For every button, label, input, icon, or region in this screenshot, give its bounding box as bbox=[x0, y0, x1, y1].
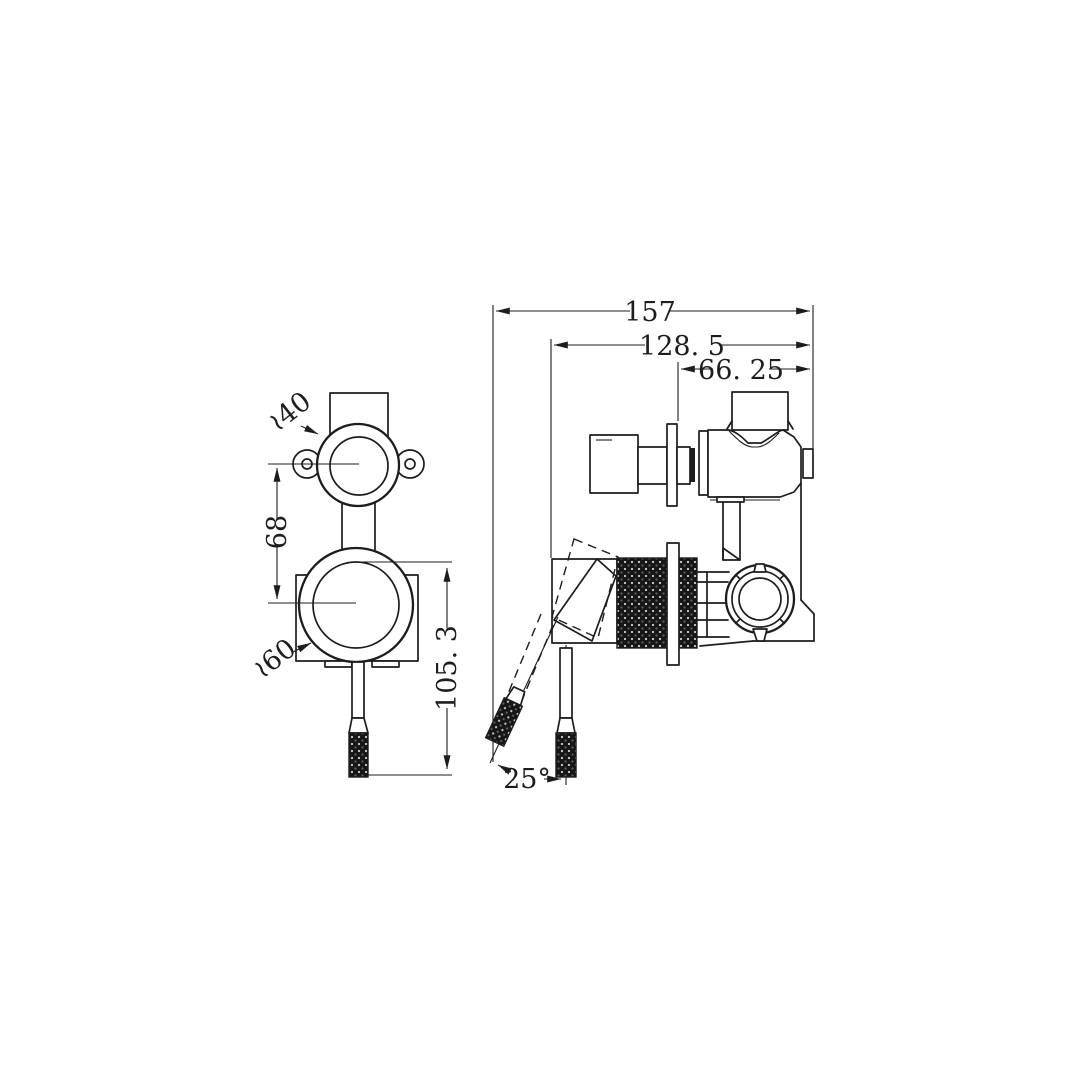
cartridge-stem bbox=[638, 447, 667, 484]
dim-overall-depth: 157 bbox=[624, 297, 676, 328]
front-handle-stem bbox=[352, 662, 364, 718]
front-view bbox=[268, 393, 424, 777]
front-handle-taper bbox=[349, 718, 368, 733]
spindle-lines bbox=[697, 572, 729, 637]
stem-spacer bbox=[677, 447, 690, 484]
lower-tab-right bbox=[372, 661, 399, 667]
lower-escutcheon-inner bbox=[313, 562, 399, 648]
valve-body bbox=[708, 430, 801, 497]
dim-handle-drop-height: 105. 3 bbox=[432, 625, 463, 711]
body-washer-plate bbox=[699, 431, 708, 495]
technical-drawing: 68 105. 3 ≀40 ≀60 bbox=[0, 0, 1080, 1080]
upper-wall-flange bbox=[667, 424, 677, 506]
knurled-collar bbox=[617, 558, 697, 648]
upper-escutcheon-inner bbox=[330, 437, 388, 495]
front-handle-grip bbox=[349, 733, 368, 777]
cartridge-box bbox=[590, 435, 638, 493]
side-view-dimensions: 157 128. 5 66. 25 25° bbox=[496, 297, 810, 795]
neck-gusset bbox=[723, 548, 740, 560]
rear-outlet bbox=[803, 449, 813, 478]
dim-bottom-diameter: ≀60 bbox=[248, 633, 302, 685]
dim-swing-angle: 25° bbox=[503, 764, 551, 795]
right-ear-hole bbox=[405, 459, 415, 469]
dim-centre-distance: 68 bbox=[262, 515, 293, 549]
drawing-canvas: 68 105. 3 ≀40 ≀60 bbox=[0, 0, 1080, 1080]
seal-washer bbox=[690, 448, 695, 482]
side-top-pipe bbox=[732, 392, 788, 430]
diverter-outlet bbox=[726, 564, 794, 641]
lower-wall-flange bbox=[667, 543, 679, 665]
side-handle-vertical bbox=[556, 645, 576, 785]
dim-front-projection: 66. 25 bbox=[698, 355, 784, 386]
